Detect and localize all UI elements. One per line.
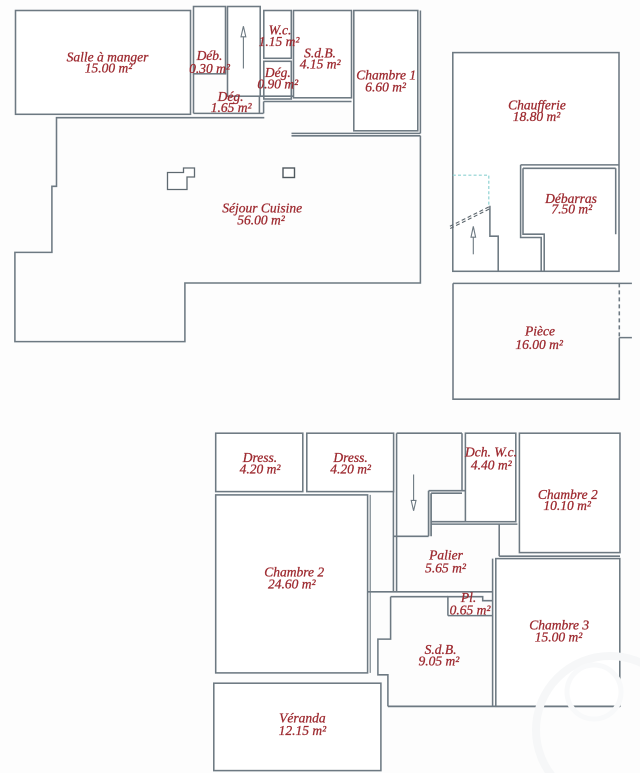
svg-text:18.80 m²: 18.80 m² (513, 109, 561, 124)
svg-text:0.65 m²: 0.65 m² (450, 602, 492, 617)
svg-text:1.15 m²: 1.15 m² (259, 34, 301, 49)
svg-text:6.60 m²: 6.60 m² (365, 80, 407, 95)
svg-text:9.05 m²: 9.05 m² (419, 654, 461, 669)
svg-text:0.30 m²: 0.30 m² (189, 61, 231, 76)
svg-text:5.65 m²: 5.65 m² (425, 560, 467, 575)
svg-text:1.65 m²: 1.65 m² (211, 100, 253, 115)
svg-text:24.60 m²: 24.60 m² (268, 577, 316, 592)
svg-text:4.15 m²: 4.15 m² (300, 57, 342, 72)
svg-text:4.20 m²: 4.20 m² (240, 462, 282, 477)
svg-text:10.10 m²: 10.10 m² (543, 498, 591, 513)
svg-text:0.90 m²: 0.90 m² (257, 77, 299, 92)
svg-text:16.00 m²: 16.00 m² (515, 337, 563, 352)
svg-text:12.15 m²: 12.15 m² (279, 723, 327, 738)
svg-text:15.00 m²: 15.00 m² (85, 61, 133, 76)
svg-text:7.50 m²: 7.50 m² (551, 202, 593, 217)
svg-text:4.40 m²: 4.40 m² (471, 457, 513, 472)
svg-text:4.20 m²: 4.20 m² (330, 462, 372, 477)
svg-text:56.00 m²: 56.00 m² (237, 213, 285, 228)
svg-text:15.00 m²: 15.00 m² (535, 629, 583, 644)
